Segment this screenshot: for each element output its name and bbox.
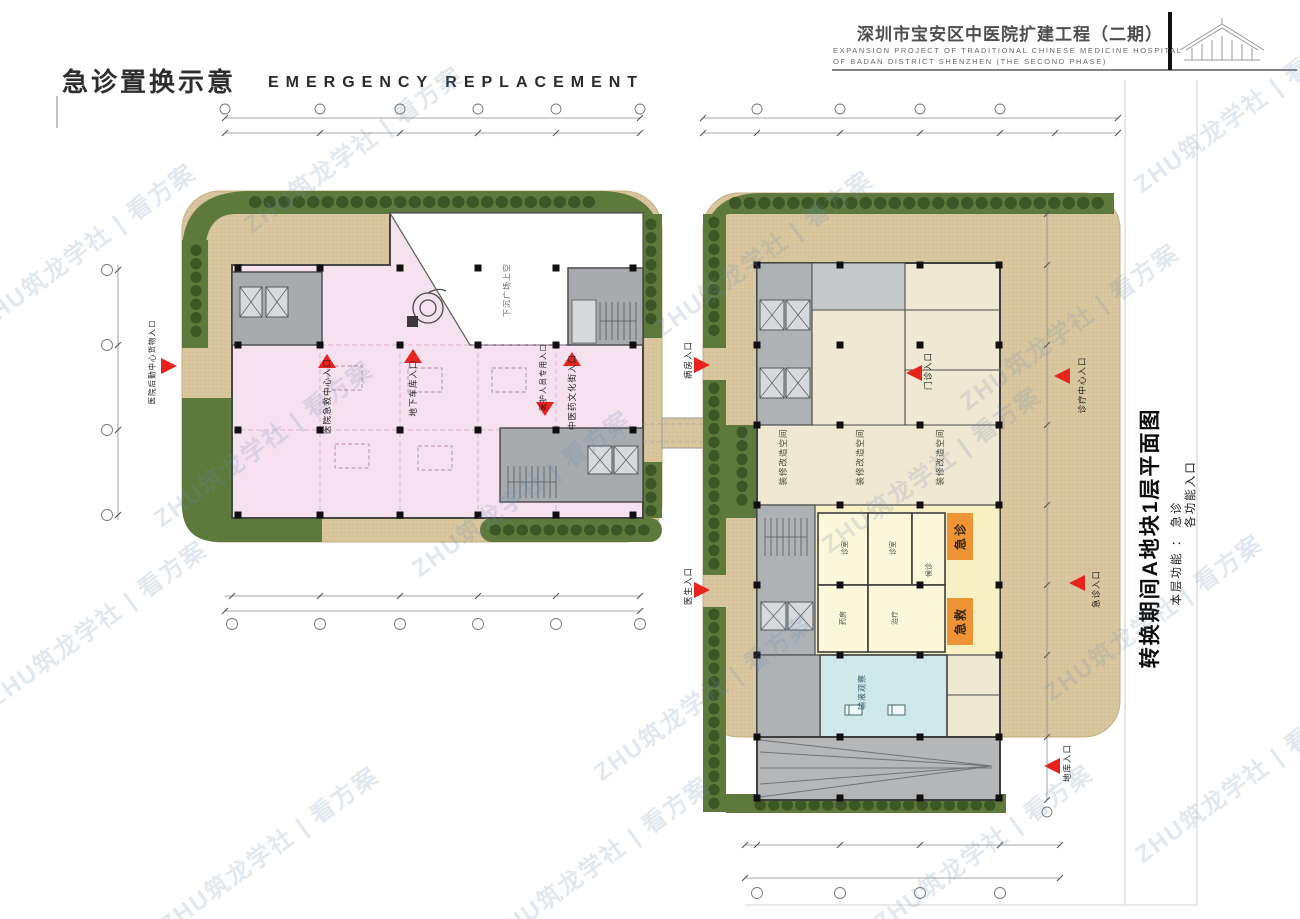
entrance-label-clinic-center: 诊疗中心入口	[1076, 356, 1088, 413]
entrance-label-street: 医院后勤中心货物入口	[147, 320, 158, 405]
left-core-upper	[232, 272, 322, 345]
zone-label-first-aid: 急救	[952, 607, 969, 635]
side-plan-title: 转换期间A地块1层平面图	[1134, 408, 1164, 669]
room-label-consult: 诊室	[840, 541, 850, 555]
room-label-infusion-observation: 输液观察	[857, 674, 868, 710]
entrance-label-outpatient: 门诊入口	[922, 352, 934, 390]
project-title-cn: 深圳市宝安区中医院扩建工程（二期）	[857, 20, 1163, 45]
entrance-label-doctor: 医生入口	[682, 567, 694, 605]
entrance-label-emergency-center: 医院急救中心入口	[321, 358, 333, 434]
renovation-space-label: 装修改造空间	[854, 428, 866, 485]
entrance-label-culture-street: 中医药文化街入口	[566, 354, 578, 430]
plan-graphics	[0, 0, 1300, 919]
entrance-arrow-icon	[161, 358, 177, 374]
hospital-roof-logo	[1180, 18, 1264, 60]
room-label-consult: 诊室	[888, 541, 898, 555]
drawing-sheet: 急诊置换示意 EMERGENCY REPLACEMENT 深圳市宝安区中医院扩建…	[0, 0, 1300, 919]
renovation-space-label: 装修改造空间	[934, 428, 946, 485]
garage-ramp	[757, 737, 1000, 800]
side-entrance-note: 各功能入口	[1182, 460, 1198, 528]
project-title-en-line2: OF BADAN DISTRICT SHENZHEN (THE SECOND P…	[833, 57, 1107, 66]
sheet-title-en: EMERGENCY REPLACEMENT	[268, 74, 644, 92]
entrance-arrow-icon	[1044, 758, 1060, 774]
left-core-lower	[500, 428, 643, 502]
project-title-en-line1: EXPANSION PROJECT OF TRADITIONAL CHINESE…	[833, 46, 1183, 55]
infusion-observation-room	[820, 655, 947, 737]
renovation-space-label: 装修改造空间	[777, 428, 789, 485]
room-label-pharmacy: 药房	[838, 611, 848, 625]
room-label-waiting: 候诊	[924, 563, 934, 577]
left-core-upper-right	[568, 268, 643, 345]
void-label: 下沉广场上空	[502, 263, 513, 317]
entrance-label-ward: 病房入口	[682, 341, 694, 379]
sheet-title-cn: 急诊置换示意	[62, 62, 236, 99]
room-label-treatment: 治疗	[890, 611, 900, 625]
header-divider	[1168, 12, 1172, 70]
entrance-label-garage-left: 地下车库入口	[407, 359, 419, 416]
zone-label-emergency-outpatient: 急诊	[952, 522, 969, 550]
entrance-label-garage: 地库入口	[1061, 744, 1073, 782]
entrance-label-staff: 医护人员专用入口	[538, 343, 549, 411]
entrance-label-emergency: 急诊入口	[1090, 570, 1102, 608]
